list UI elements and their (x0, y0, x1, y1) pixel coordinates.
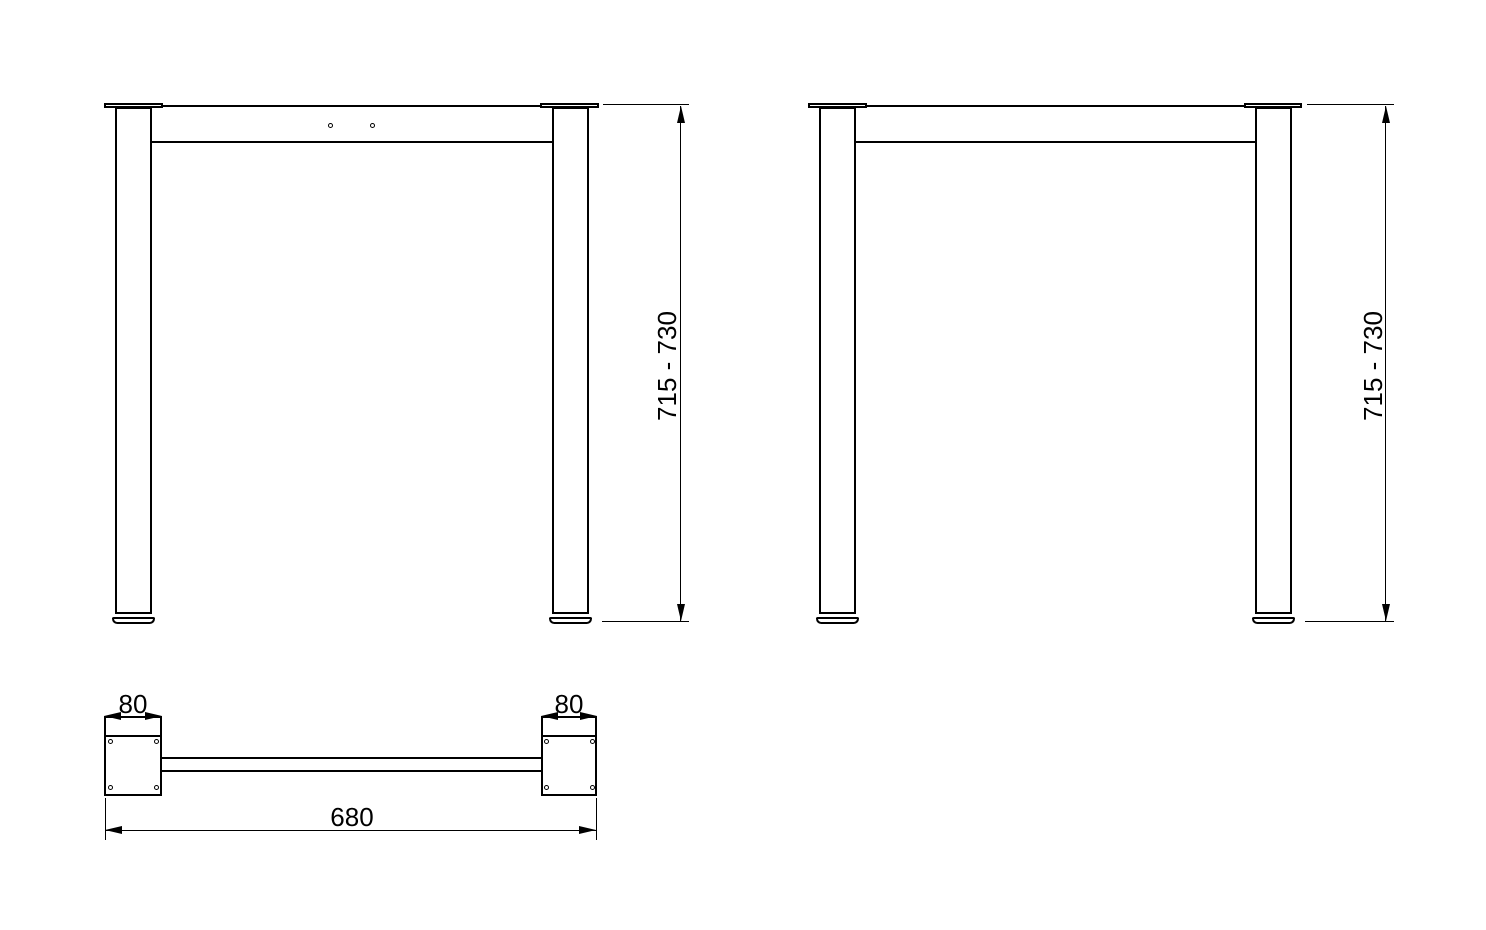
plan-right-plate-inner-line (543, 735, 595, 737)
plan-right-plate-hole (544, 785, 549, 790)
plan-right-plate-hole (544, 739, 549, 744)
side-left-flange (808, 103, 867, 108)
side-height-dimension-label: 715 - 730 (1360, 311, 1386, 421)
plan-overall-length-label: 680 (330, 804, 373, 830)
plan-left-plate-hole (154, 739, 159, 744)
arrow-up-icon (1382, 106, 1390, 123)
side-view: 715 - 730 (0, 0, 1486, 680)
technical-drawing-canvas: 715 - 730 715 - 730 (0, 0, 1486, 930)
plan-right-extension-line (596, 798, 597, 840)
arrow-left-icon (541, 712, 558, 720)
arrow-left-icon (105, 826, 122, 834)
side-right-foot (1252, 617, 1295, 624)
plan-left-plate-inner-line (106, 735, 160, 737)
side-apron (855, 105, 1255, 143)
side-top-extension-line (1307, 104, 1394, 105)
arrow-left-icon (104, 712, 121, 720)
plan-right-plate-hole (590, 785, 595, 790)
side-right-leg (1255, 107, 1292, 614)
plan-left-plate (104, 716, 162, 796)
arrow-right-icon (580, 712, 597, 720)
plan-left-plate-hole (108, 785, 113, 790)
arrow-right-icon (579, 826, 596, 834)
arrow-right-icon (145, 712, 162, 720)
side-bottom-extension-line (1305, 621, 1394, 622)
side-left-leg (819, 107, 856, 614)
arrow-down-icon (1382, 604, 1390, 621)
side-right-flange (1244, 103, 1302, 108)
plan-view: 80 80 680 (0, 680, 740, 930)
plan-left-plate-hole (154, 785, 159, 790)
plan-right-plate (541, 716, 597, 796)
plan-left-plate-width-label: 80 (119, 691, 148, 717)
plan-crossbar (160, 757, 543, 772)
plan-right-plate-hole (590, 739, 595, 744)
side-left-foot (816, 617, 859, 624)
plan-left-plate-hole (108, 739, 113, 744)
